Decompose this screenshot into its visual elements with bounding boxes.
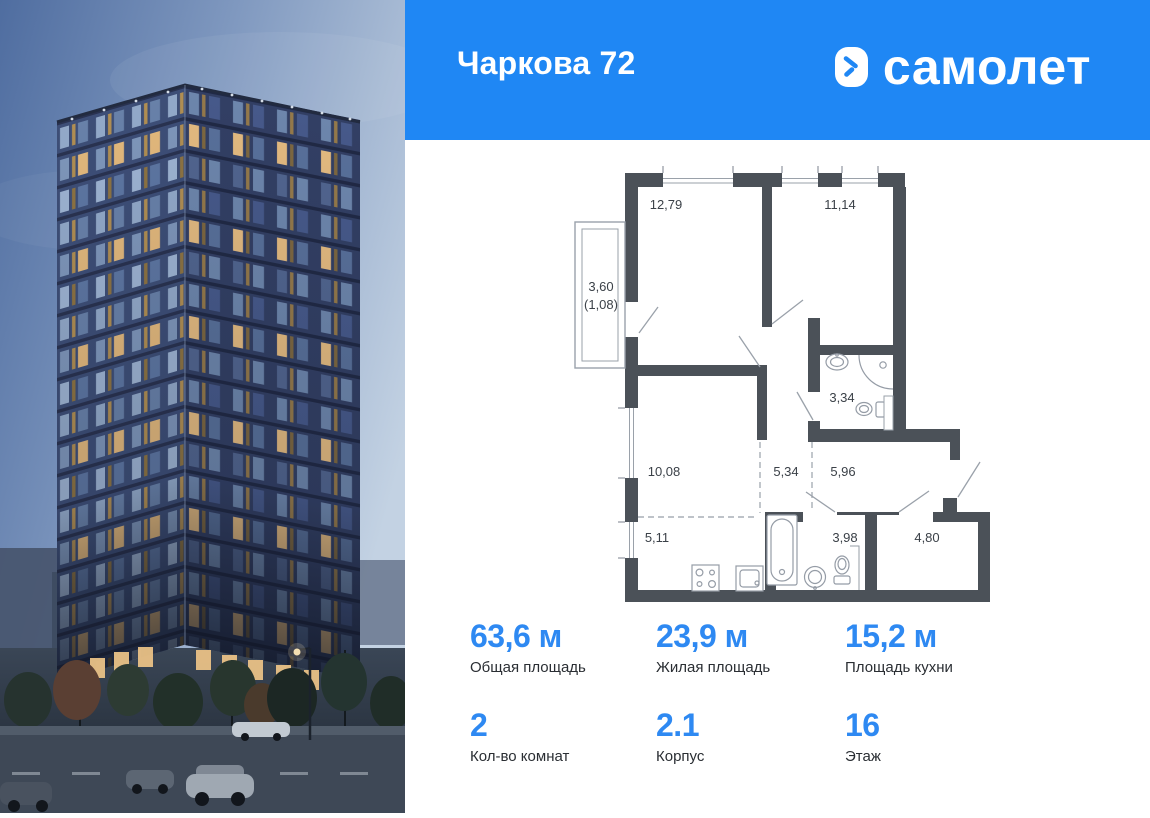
- balcony: [575, 222, 625, 368]
- balcony-label-reduced: (1,08): [584, 297, 618, 312]
- stat-label: Корпус: [656, 748, 845, 766]
- building-photo: [0, 0, 405, 813]
- room-label: 3,98: [832, 530, 857, 545]
- stat-label: Жилая площадь: [656, 659, 845, 677]
- toilet-icon: [856, 402, 885, 417]
- room-label: 3,34: [829, 390, 854, 405]
- brand-name: самолет: [883, 47, 1091, 87]
- stat-value: 2: [470, 709, 656, 741]
- building-scene: [0, 0, 405, 813]
- stat-kitchen-area: 15,2 м Площадь кухни: [845, 620, 1085, 677]
- room-label: 5,11: [645, 530, 669, 545]
- stat-total-area: 63,6 м Общая площадь: [470, 620, 656, 677]
- shaft: [884, 396, 893, 430]
- stat-value: 2.1: [656, 709, 845, 741]
- apartment-stats: 63,6 м Общая площадь 23,9 м Жилая площад…: [470, 620, 1085, 766]
- samolet-logo-icon: [835, 47, 868, 87]
- room-label: 12,79: [650, 197, 683, 212]
- stat-living-area: 23,9 м Жилая площадь: [656, 620, 845, 677]
- duct: [850, 546, 859, 590]
- shower-icon: [859, 355, 893, 389]
- listing-panel: Чаркова 72 самолет: [405, 0, 1150, 813]
- room-label: 11,14: [824, 197, 856, 212]
- page-title: Чаркова 72: [457, 43, 636, 83]
- stat-value: 15,2 м: [845, 620, 1085, 652]
- stat-building: 2.1 Корпус: [656, 709, 845, 766]
- sidewalk: [0, 726, 405, 735]
- stat-value: 16: [845, 709, 1085, 741]
- brand-logo: самолет: [835, 46, 1091, 88]
- stat-floor: 16 Этаж: [845, 709, 1085, 766]
- washbasin-icon: [826, 354, 848, 370]
- stove-icon: [692, 565, 719, 591]
- kitchen-sink-icon: [736, 566, 763, 591]
- stat-label: Площадь кухни: [845, 659, 1085, 677]
- stat-value: 23,9 м: [656, 620, 845, 652]
- room-label: 5,34: [773, 464, 798, 479]
- stat-value: 63,6 м: [470, 620, 656, 652]
- balcony-label: 3,60: [588, 279, 613, 294]
- toilet-icon: [834, 556, 850, 584]
- room-label: 4,80: [914, 530, 939, 545]
- stat-label: Общая площадь: [470, 659, 656, 677]
- stat-label: Кол-во комнат: [470, 748, 656, 766]
- room-label: 5,96: [830, 464, 855, 479]
- header: Чаркова 72 самолет: [405, 0, 1150, 140]
- stat-label: Этаж: [845, 748, 1085, 766]
- floor-plan: 12,79 11,14 3,60 (1,08) 3,34 10,08 5,34 …: [563, 160, 995, 612]
- stat-rooms: 2 Кол-во комнат: [470, 709, 656, 766]
- zone-dashes: [638, 442, 812, 517]
- bathtub-icon: [767, 515, 797, 585]
- tower: [57, 85, 360, 694]
- washbasin-icon: [805, 567, 826, 590]
- room-label: 10,08: [648, 464, 681, 479]
